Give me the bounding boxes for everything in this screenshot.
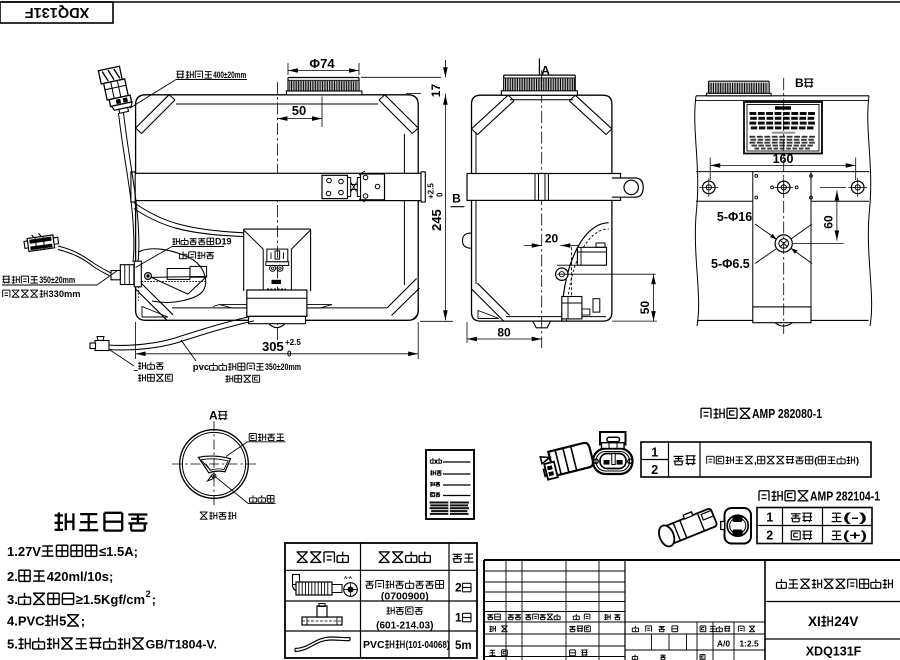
svg-text:5-Φ6.5: 5-Φ6.5 bbox=[711, 257, 750, 271]
svg-text:4.PVC: 4.PVC bbox=[7, 614, 45, 629]
svg-text:330mm: 330mm bbox=[49, 289, 81, 299]
svg-text:80: 80 bbox=[497, 326, 511, 340]
svg-text:1:2.5: 1:2.5 bbox=[739, 639, 759, 649]
svg-text:AMP 282080-1: AMP 282080-1 bbox=[752, 407, 822, 421]
svg-text:Φ74: Φ74 bbox=[309, 56, 335, 71]
svg-text:50: 50 bbox=[292, 103, 306, 118]
svg-text:A: A bbox=[541, 64, 550, 78]
svg-text:,: , bbox=[754, 456, 757, 467]
svg-text:5m: 5m bbox=[455, 640, 472, 652]
svg-text:(0700900): (0700900) bbox=[381, 591, 429, 603]
svg-text:A: A bbox=[209, 409, 218, 423]
svg-text:≥1.5Kgf/cm: ≥1.5Kgf/cm bbox=[76, 592, 145, 607]
svg-text:(-): (-) bbox=[843, 511, 867, 525]
svg-text:GB/T1804-V.: GB/T1804-V. bbox=[146, 638, 217, 652]
svg-text:2: 2 bbox=[146, 589, 151, 599]
svg-text:2: 2 bbox=[766, 529, 773, 543]
svg-text:24V: 24V bbox=[834, 614, 858, 629]
svg-text:1: 1 bbox=[455, 611, 462, 625]
svg-text:A-A: A-A bbox=[344, 575, 353, 580]
svg-text:0: 0 bbox=[436, 192, 445, 197]
svg-text:5.: 5. bbox=[7, 637, 18, 652]
svg-text:5: 5 bbox=[59, 614, 66, 629]
svg-text:305: 305 bbox=[262, 339, 284, 354]
svg-text:400±20mm: 400±20mm bbox=[213, 70, 246, 80]
svg-text:D19: D19 bbox=[215, 237, 232, 247]
svg-text:350±20mm: 350±20mm bbox=[39, 275, 75, 285]
svg-text:2: 2 bbox=[651, 463, 658, 477]
svg-text:;: ; bbox=[152, 592, 156, 607]
svg-text:5-Φ16: 5-Φ16 bbox=[717, 210, 752, 224]
svg-text:60: 60 bbox=[822, 215, 836, 229]
svg-text:;: ; bbox=[81, 614, 85, 629]
svg-text:1: 1 bbox=[766, 511, 773, 525]
svg-text:160: 160 bbox=[773, 152, 794, 166]
svg-text:XDQ131F: XDQ131F bbox=[806, 645, 862, 659]
svg-text:1.27V: 1.27V bbox=[7, 544, 41, 559]
svg-text:350±20mm: 350±20mm bbox=[265, 362, 301, 372]
svg-text:XDQ131F: XDQ131F bbox=[25, 4, 90, 20]
svg-text:): ) bbox=[856, 456, 859, 467]
svg-text:+2.5: +2.5 bbox=[285, 338, 301, 347]
svg-text:B: B bbox=[452, 192, 461, 206]
svg-text:+2.5: +2.5 bbox=[427, 183, 436, 199]
svg-text:17: 17 bbox=[429, 84, 443, 98]
svg-text:1: 1 bbox=[651, 446, 658, 460]
svg-text:50: 50 bbox=[638, 301, 652, 315]
svg-text:B: B bbox=[795, 76, 804, 90]
svg-text:≤1.5A;: ≤1.5A; bbox=[99, 544, 138, 559]
svg-text:(+): (+) bbox=[843, 529, 867, 543]
svg-text:245: 245 bbox=[429, 209, 444, 231]
svg-text:AMP 282104-1: AMP 282104-1 bbox=[810, 490, 880, 504]
svg-text:PVC: PVC bbox=[363, 639, 385, 651]
svg-text:3.: 3. bbox=[7, 592, 18, 607]
svg-text:A/0: A/0 bbox=[717, 639, 731, 649]
svg-text:2: 2 bbox=[455, 581, 462, 595]
svg-text:(601-214.03): (601-214.03) bbox=[376, 621, 433, 632]
svg-text:420ml/10s;: 420ml/10s; bbox=[47, 569, 114, 584]
svg-text:XI: XI bbox=[808, 614, 821, 629]
svg-text:pvc: pvc bbox=[193, 362, 209, 373]
svg-text:0: 0 bbox=[287, 350, 292, 359]
svg-text:20: 20 bbox=[545, 232, 559, 246]
svg-text:2.: 2. bbox=[7, 569, 18, 584]
svg-text:(101-04068): (101-04068) bbox=[406, 639, 450, 651]
